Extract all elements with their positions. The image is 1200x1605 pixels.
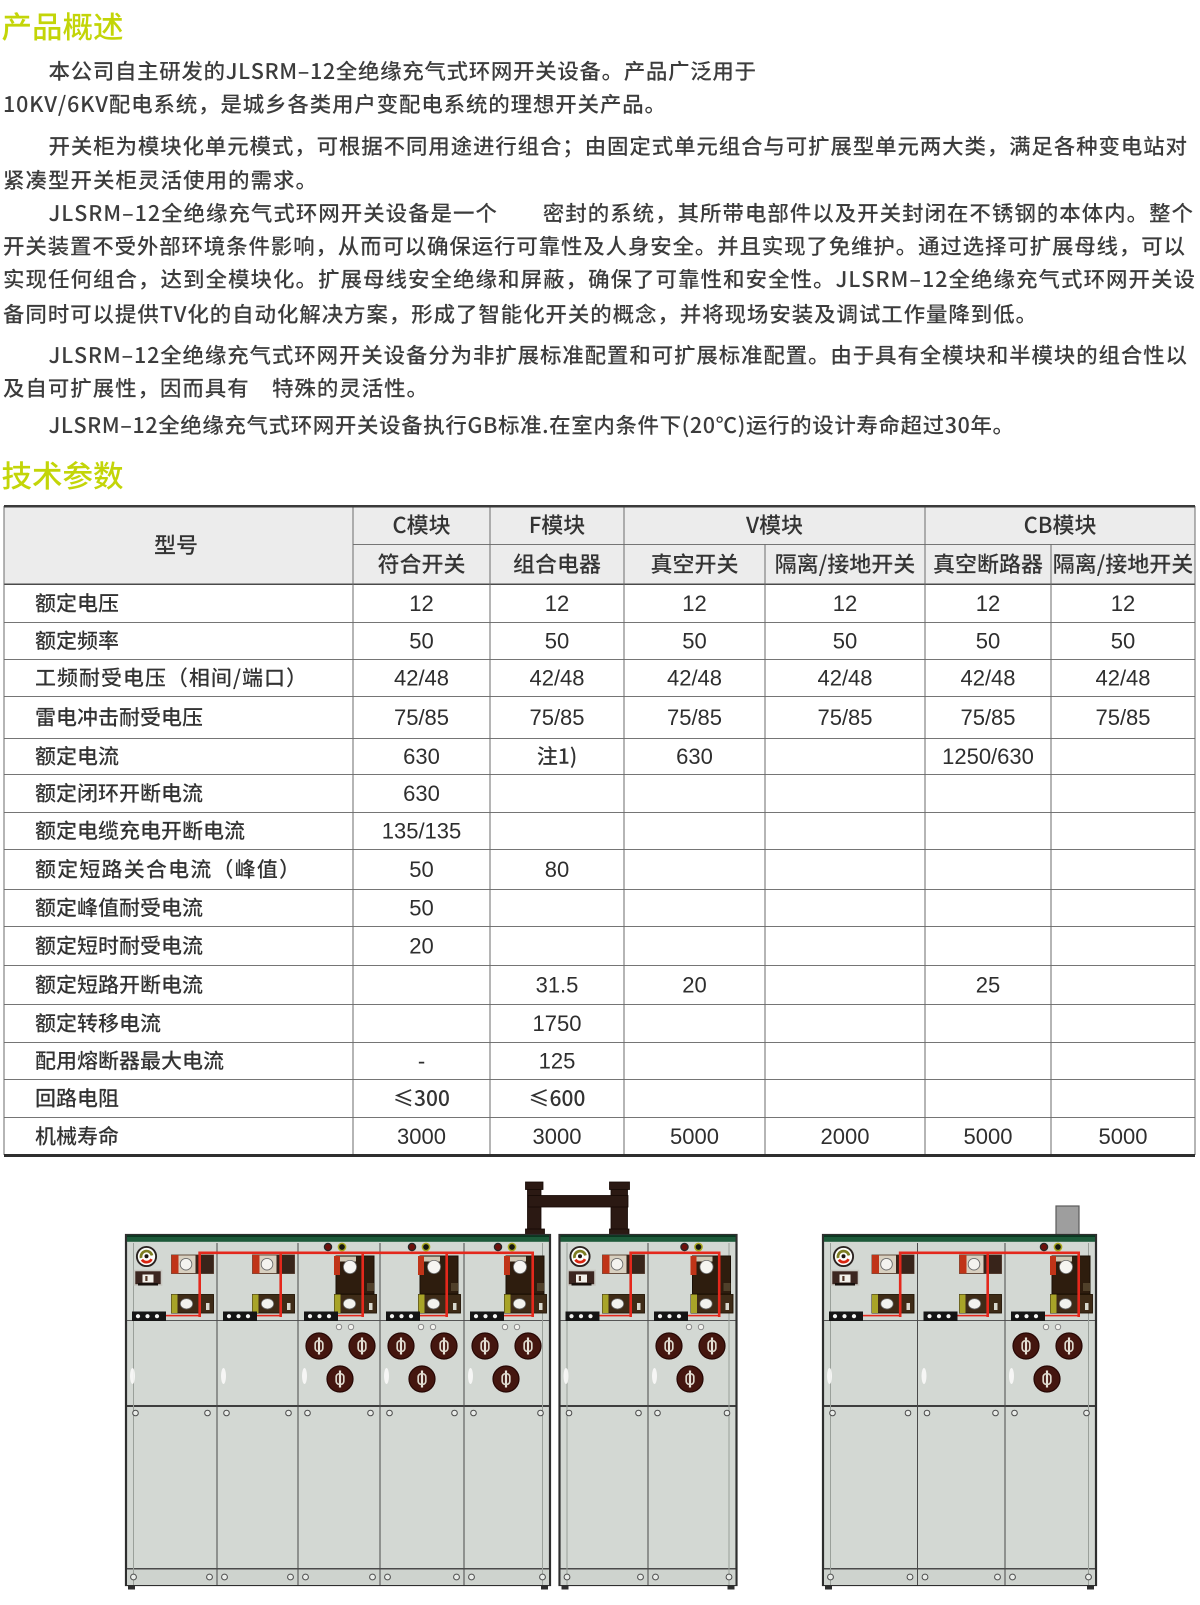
svg-text:42/48: 42/48 [529, 665, 584, 690]
svg-text:1750: 1750 [533, 1011, 582, 1036]
svg-text:75/85: 75/85 [960, 705, 1015, 730]
svg-text:630: 630 [403, 744, 440, 769]
svg-text:50: 50 [833, 628, 857, 653]
svg-text:20: 20 [409, 933, 433, 958]
svg-text:42/48: 42/48 [960, 665, 1015, 690]
svg-text:50: 50 [409, 628, 433, 653]
svg-text:630: 630 [403, 781, 440, 806]
svg-text:42/48: 42/48 [1095, 665, 1150, 690]
svg-text:80: 80 [545, 857, 569, 882]
svg-text:75/85: 75/85 [529, 705, 584, 730]
svg-text:31.5: 31.5 [536, 972, 579, 997]
svg-text:50: 50 [409, 895, 433, 920]
svg-text:5000: 5000 [670, 1124, 719, 1149]
svg-text:12: 12 [545, 591, 569, 616]
svg-text:42/48: 42/48 [667, 665, 722, 690]
svg-text:1250/630: 1250/630 [942, 744, 1034, 769]
svg-text:20: 20 [682, 972, 706, 997]
svg-text:12: 12 [409, 591, 433, 616]
svg-text:50: 50 [1111, 628, 1135, 653]
svg-text:25: 25 [976, 972, 1000, 997]
svg-text:50: 50 [545, 628, 569, 653]
svg-text:75/85: 75/85 [394, 705, 449, 730]
svg-text:125: 125 [539, 1048, 576, 1073]
svg-text:630: 630 [676, 744, 713, 769]
svg-text:5000: 5000 [1099, 1124, 1148, 1149]
svg-text:12: 12 [833, 591, 857, 616]
svg-text:5000: 5000 [964, 1124, 1013, 1149]
svg-text:50: 50 [409, 857, 433, 882]
svg-text:3000: 3000 [533, 1124, 582, 1149]
svg-text:50: 50 [682, 628, 706, 653]
svg-text:2000: 2000 [821, 1124, 870, 1149]
svg-text:75/85: 75/85 [817, 705, 872, 730]
svg-text:135/135: 135/135 [382, 818, 462, 843]
svg-text:12: 12 [976, 591, 1000, 616]
svg-text:75/85: 75/85 [1095, 705, 1150, 730]
svg-text:-: - [418, 1048, 425, 1073]
svg-text:12: 12 [682, 591, 706, 616]
svg-text:12: 12 [1111, 591, 1135, 616]
svg-text:50: 50 [976, 628, 1000, 653]
svg-text:75/85: 75/85 [667, 705, 722, 730]
svg-text:42/48: 42/48 [394, 665, 449, 690]
svg-text:42/48: 42/48 [817, 665, 872, 690]
svg-text:3000: 3000 [397, 1124, 446, 1149]
